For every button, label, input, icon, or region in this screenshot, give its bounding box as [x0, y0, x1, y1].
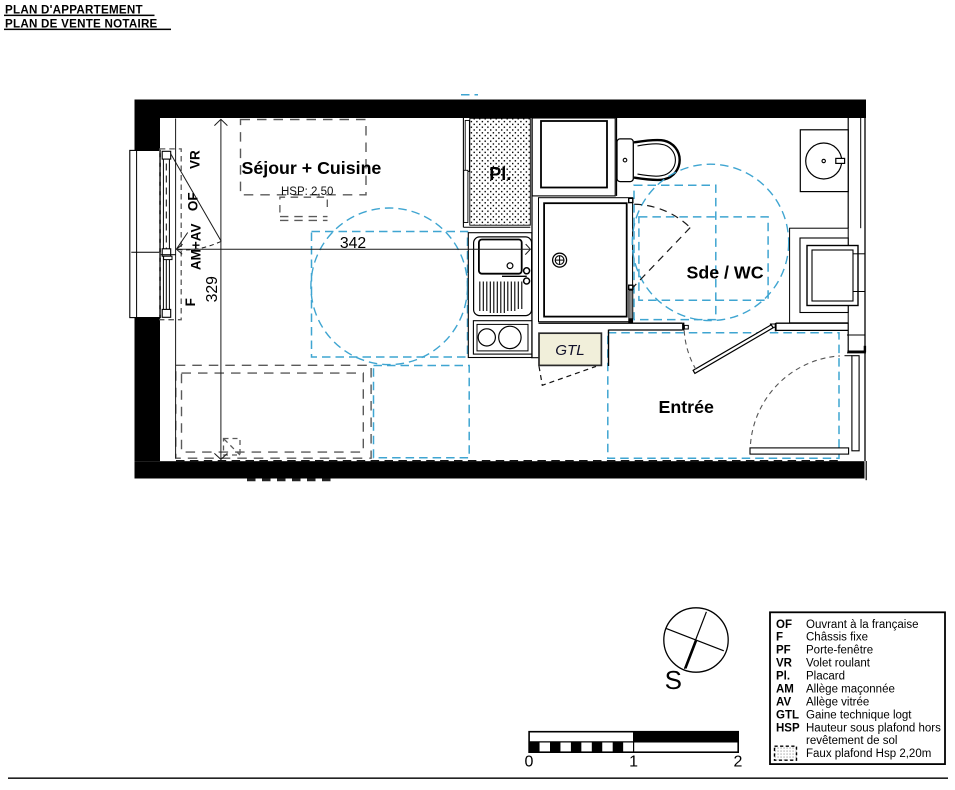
- svg-text:Pl.: Pl.: [776, 671, 790, 683]
- svg-text:Volet roulant: Volet roulant: [806, 658, 871, 670]
- svg-text:1: 1: [629, 754, 638, 771]
- svg-text:PLAN DE VENTE NOTAIRE: PLAN DE VENTE NOTAIRE: [5, 17, 158, 30]
- svg-text:revêtement de sol: revêtement de sol: [806, 735, 897, 747]
- svg-text:Faux plafond Hsp 2,20m: Faux plafond Hsp 2,20m: [806, 748, 931, 760]
- svg-text:Châssis fixe: Châssis fixe: [806, 632, 868, 644]
- svg-text:Allège vitrée: Allège vitrée: [806, 696, 869, 708]
- svg-text:F: F: [776, 632, 783, 644]
- svg-text:OF: OF: [776, 619, 792, 631]
- svg-text:F: F: [183, 298, 198, 306]
- svg-text:OF: OF: [186, 192, 201, 211]
- svg-text:0: 0: [525, 754, 534, 771]
- svg-text:Séjour + Cuisine: Séjour + Cuisine: [242, 158, 382, 178]
- svg-text:GTL: GTL: [776, 709, 799, 721]
- svg-text:GTL: GTL: [555, 342, 585, 359]
- svg-text:S: S: [665, 665, 682, 695]
- svg-text:VR: VR: [187, 150, 202, 169]
- svg-text:342: 342: [340, 235, 366, 252]
- svg-text:PF: PF: [776, 645, 791, 657]
- svg-text:VR: VR: [776, 658, 793, 670]
- svg-text:PLAN D'APPARTEMENT: PLAN D'APPARTEMENT: [5, 3, 143, 16]
- svg-text:Ouvrant à la française: Ouvrant à la française: [806, 619, 919, 631]
- svg-text:Porte-fenêtre: Porte-fenêtre: [806, 645, 873, 657]
- svg-text:Hauteur sous plafond hors: Hauteur sous plafond hors: [806, 722, 941, 734]
- svg-text:Placard: Placard: [806, 671, 845, 683]
- svg-text:AM: AM: [776, 684, 794, 696]
- svg-text:2: 2: [734, 754, 743, 771]
- svg-text:AV: AV: [776, 696, 791, 708]
- svg-text:329: 329: [204, 276, 221, 303]
- svg-text:Allège maçonnée: Allège maçonnée: [806, 684, 895, 696]
- svg-text:Sde / WC: Sde / WC: [687, 263, 764, 283]
- svg-text:HSP: HSP: [776, 722, 800, 734]
- svg-text:HSP: 2,50: HSP: 2,50: [281, 186, 333, 198]
- svg-text:Gaine technique logt: Gaine technique logt: [806, 709, 912, 721]
- svg-text:Pl.: Pl.: [489, 164, 511, 184]
- svg-text:Entrée: Entrée: [659, 397, 714, 417]
- svg-text:AM+AV: AM+AV: [189, 223, 204, 270]
